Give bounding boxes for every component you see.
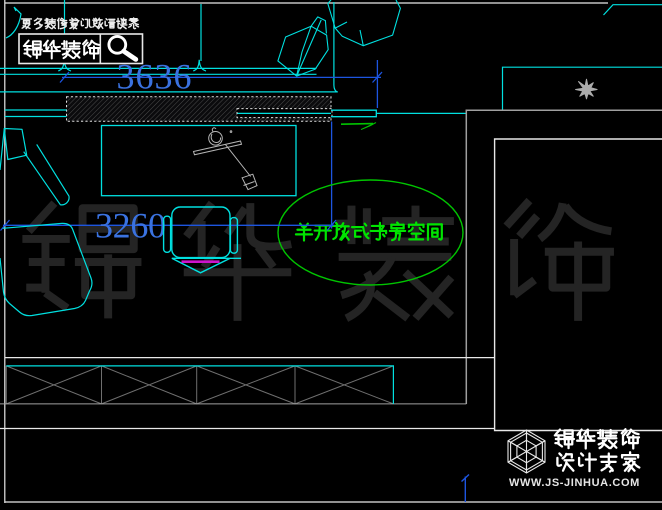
svg-text:3260: 3260 <box>95 206 166 246</box>
svg-text:WWW.JS-JINHUA.COM: WWW.JS-JINHUA.COM <box>509 477 640 489</box>
